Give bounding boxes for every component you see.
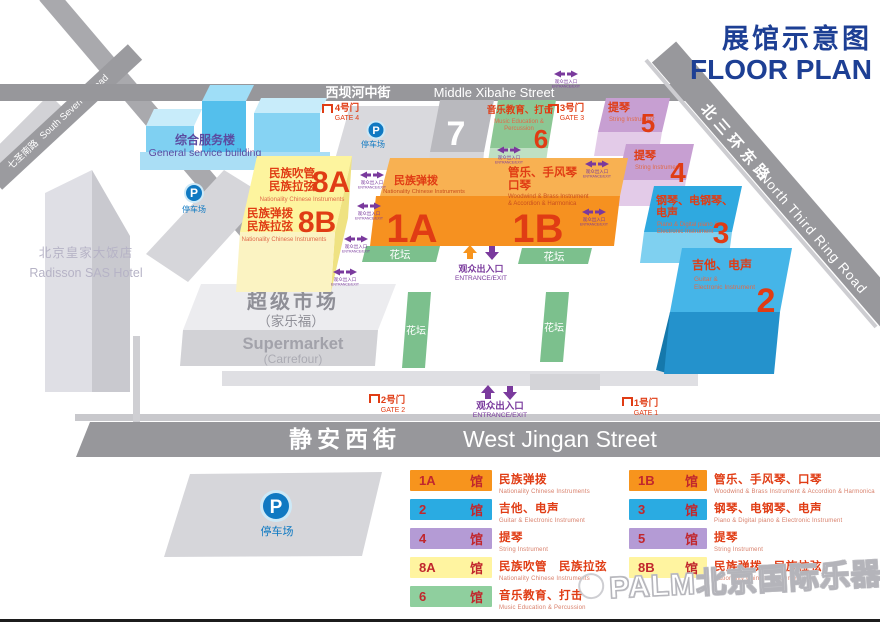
road-jingan: 静安西街 West Jingan Street	[75, 414, 880, 457]
entrance-en: ENTRANCE/EXIT	[583, 175, 612, 179]
hall-8a-number: 8A	[312, 166, 350, 199]
legend-desc-zh: 吉他、电声	[499, 500, 585, 516]
parking-label: 停车场	[182, 204, 206, 214]
venue-walkway	[222, 371, 698, 386]
legend-num: 3	[638, 502, 645, 517]
entrance-zh: 观众出入口	[458, 263, 503, 274]
entrance-exit-marker: 观众出入口 ENTRANCE/EXIT	[552, 71, 581, 89]
gate-4: 4号门 GATE 4	[323, 102, 359, 122]
gate-icon	[323, 105, 332, 113]
supermarket-zh: 超级市场	[246, 289, 339, 313]
hall-3-label-en1: Piano & Digital piano &	[657, 222, 718, 228]
legend-num: 1B	[638, 473, 655, 488]
hall-8b-label-en: Nationality Chinese Instruments	[242, 237, 327, 243]
hall-2: 吉他、电声 Guitar & Electronic Instrument 2	[656, 248, 792, 374]
legend-desc-en: Nationality Chinese Instruments	[714, 576, 822, 582]
flower-bed-label: 花坛	[406, 324, 426, 337]
supermarket-en-sub: (Carrefour)	[264, 352, 323, 366]
parking-lot-south: P 停车场	[164, 472, 382, 557]
legend-box-8b: 8B馆	[629, 557, 707, 578]
service-block3-top	[254, 98, 327, 113]
entrance-en: ENTRANCE/EXIT	[495, 161, 524, 165]
venue-side-path	[133, 336, 140, 422]
hall-4-label-zh: 提琴	[634, 148, 656, 162]
service-block2-top	[202, 85, 254, 101]
hall-2-label-en1: Guitar &	[694, 276, 719, 283]
legend-row-2: 2馆 吉他、电声Guitar & Electronic Instrument	[410, 499, 585, 524]
legend-desc-en: Music Education & Percussion	[499, 605, 586, 611]
floor-plan-page: 七圣南路South Seven st Road 西坝河中街 Middle Xib…	[0, 0, 880, 622]
entrance-central: 观众出入口 ENTRANCE/EXIT	[455, 245, 507, 282]
entrance-south: 观众出入口 ENTRANCE/EXIT	[473, 385, 527, 419]
hall-6-label-en2: Percussion	[504, 126, 534, 132]
entrance-en: ENTRANCE/EXIT	[580, 223, 609, 227]
down-arrow-icon	[485, 246, 499, 260]
gate-2-en: GATE 2	[381, 407, 405, 414]
gate-3-en: GATE 3	[560, 115, 584, 122]
hotel-name-zh: 北京皇家大饭店	[39, 245, 134, 260]
legend-desc-zh: 提琴	[714, 529, 763, 545]
supermarket-en: Supermarket	[243, 335, 344, 353]
hall-1b-label-en1: Woodwind & Brass Instrument	[508, 194, 589, 200]
legend-row-1a: 1A馆 民族弹拨Nationality Chinese Instruments	[410, 470, 590, 495]
entrance-en: ENTRANCE/EXIT	[455, 275, 507, 282]
entrance-en: ENTRANCE/EXIT	[342, 250, 371, 254]
legend-desc-zh: 钢琴、电钢琴、电声	[714, 500, 842, 516]
hall-2-number: 2	[757, 282, 776, 320]
legend-suffix: 馆	[685, 558, 698, 577]
legend-suffix: 馆	[470, 529, 483, 548]
hall-2-label-zh: 吉他、电声	[692, 257, 752, 272]
gate-4-zh: 4号门	[335, 102, 359, 114]
legend-desc-en: Nationality Chinese Instruments	[499, 576, 607, 582]
supermarket-zh-sub: （家乐福）	[257, 313, 325, 329]
page-title: 展馆示意图 FLOOR PLAN	[690, 23, 872, 85]
road-xibahe-en: Middle Xibahe Street	[434, 85, 555, 100]
hall-1a-label-en: Nationality Chinese Instruments	[383, 189, 465, 195]
legend-desc-en: Piano & Digital piano & Electronic Instr…	[714, 518, 842, 524]
hotel-building: 北京皇家大饭店 Radisson SAS Hotel	[29, 170, 142, 392]
hotel-name-en: Radisson SAS Hotel	[29, 266, 142, 280]
hall-1b-label-zh1: 管乐、手风琴	[508, 165, 577, 179]
legend-num: 2	[419, 502, 426, 517]
hall-3-label-zh1: 钢琴、电钢琴、	[656, 193, 733, 207]
title-zh: 展馆示意图	[722, 23, 872, 54]
hall-5-number: 5	[641, 108, 655, 138]
hall-7: 7	[429, 100, 494, 164]
entrance-en: ENTRANCE/EXIT	[358, 186, 387, 190]
legend-suffix: 馆	[685, 471, 698, 490]
walkway-step	[530, 374, 600, 390]
legend-row-1b: 1B馆 管乐、手风琴、口琴Woodwind & Brass Instrument…	[629, 470, 875, 495]
legend-box-5: 5馆	[629, 528, 707, 549]
road-xibahe-zh: 西坝河中街	[325, 85, 390, 100]
entrance-exit-marker: 观众出入口 ENTRANCE/EXIT	[358, 172, 387, 190]
legend-row-3: 3馆 钢琴、电钢琴、电声Piano & Digital piano & Elec…	[629, 499, 842, 524]
hall-8a-label-en: Nationality Chinese Instruments	[260, 197, 345, 203]
road-jingan-zh: 静安西街	[289, 426, 401, 452]
legend-desc-zh: 管乐、手风琴、口琴	[714, 471, 875, 487]
hall-6-number: 6	[534, 124, 548, 154]
legend-box-2: 2馆	[410, 499, 492, 520]
legend-suffix: 馆	[685, 529, 698, 548]
title-en: FLOOR PLAN	[690, 54, 872, 85]
hall-5-label-zh: 提琴	[608, 100, 630, 114]
supermarket-building: 超级市场 （家乐福） Supermarket (Carrefour)	[180, 284, 396, 366]
parking-symbol: P	[270, 497, 283, 518]
gate-2-zh: 2号门	[381, 394, 405, 406]
legend-desc-zh: 民族吹管 民族拉弦	[499, 558, 607, 574]
entrance-zh: 观众出入口	[475, 400, 524, 412]
down-arrow-icon	[503, 386, 517, 400]
hall-8b-label-zh2: 民族拉弦	[247, 219, 293, 233]
legend-suffix: 馆	[470, 500, 483, 519]
legend-num: 6	[419, 589, 426, 604]
legend-box-3: 3馆	[629, 499, 707, 520]
legend-row-8a: 8A馆 民族吹管 民族拉弦Nationality Chinese Instrum…	[410, 557, 607, 582]
gate-icon	[623, 398, 632, 406]
legend-box-4: 4馆	[410, 528, 492, 549]
entrance-en: ENTRANCE/EXIT	[331, 283, 360, 287]
road-jingan-en: West Jingan Street	[463, 426, 658, 452]
legend-suffix: 馆	[470, 471, 483, 490]
legend-row-6: 6馆 音乐教育、打击Music Education & Percussion	[410, 586, 586, 611]
hotel-face-right	[92, 170, 130, 392]
hall-8a-label-zh2: 民族拉弦	[269, 179, 315, 193]
legend-desc-en: String Instrument	[714, 547, 763, 553]
hall-8b-number: 8B	[298, 206, 336, 239]
hall-8b-label-zh1: 民族弹拨	[247, 206, 293, 220]
hotel-face-left	[45, 170, 92, 392]
gate-1-zh: 1号门	[634, 397, 658, 409]
legend-row-4: 4馆 提琴String Instrument	[410, 528, 548, 553]
gate-3: 3号门 GATE 3	[549, 102, 584, 122]
legend-row-5: 5馆 提琴String Instrument	[629, 528, 763, 553]
hall-4-number: 4	[670, 157, 686, 188]
legend-desc-zh: 音乐教育、打击	[499, 587, 586, 603]
legend-num: 8A	[419, 560, 436, 575]
legend-desc-en: Nationality Chinese Instruments	[499, 489, 590, 495]
hall-3-label-zh2: 电声	[656, 205, 678, 219]
legend-box-8a: 8A馆	[410, 557, 492, 578]
hall-1a-number: 1A	[386, 207, 437, 251]
hall-3-number: 3	[713, 217, 730, 250]
service-name-en: General service building	[149, 147, 262, 159]
legend-box-1a: 1A馆	[410, 470, 492, 491]
hall-7-number: 7	[447, 115, 466, 153]
legend-desc-zh: 民族弹拨 民族拉弦	[714, 558, 822, 574]
legend-box-6: 6馆	[410, 586, 492, 607]
legend-num: 8B	[638, 560, 655, 575]
hall-1b-number: 1B	[512, 207, 563, 251]
hall-1b-label-zh2: 口琴	[508, 179, 531, 192]
flower-bed-label: 花坛	[544, 321, 564, 334]
flower-bed-label: 花坛	[390, 248, 411, 261]
hall-2-front	[664, 312, 780, 374]
service-name-zh: 综合服务楼	[175, 132, 235, 147]
up-arrow-icon	[463, 245, 477, 259]
road-xibahe: 西坝河中街 Middle Xibahe Street	[0, 84, 692, 101]
legend-num: 4	[419, 531, 426, 546]
parking-label: 停车场	[361, 139, 385, 149]
legend-desc-zh: 提琴	[499, 529, 548, 545]
hall-8a-label-zh1: 民族吹管	[269, 166, 315, 180]
service-block3-front	[254, 113, 320, 152]
legend-suffix: 馆	[470, 587, 483, 606]
legend-row-8b: 8B馆 民族弹拨 民族拉弦Nationality Chinese Instrum…	[629, 557, 822, 582]
gate-3-zh: 3号门	[560, 102, 584, 114]
legend-suffix: 馆	[685, 500, 698, 519]
entrance-en: ENTRANCE/EXIT	[473, 412, 527, 419]
legend-box-1b: 1B馆	[629, 470, 707, 491]
legend-num: 5	[638, 531, 645, 546]
gate-4-en: GATE 4	[335, 115, 359, 122]
hall-3-label-en2: Electronic Instrument	[657, 229, 714, 235]
entrance-en: ENTRANCE/EXIT	[355, 217, 384, 221]
parking-symbol: P	[190, 186, 198, 200]
hall-1a-label-zh: 民族弹拨	[394, 173, 439, 187]
entrance-exit-marker: 观众出入口 ENTRANCE/EXIT	[342, 236, 371, 254]
legend-suffix: 馆	[470, 558, 483, 577]
legend-desc-en: Guitar & Electronic Instrument	[499, 518, 585, 524]
legend-desc-zh: 民族弹拨	[499, 471, 590, 487]
legend-num: 1A	[419, 473, 436, 488]
up-arrow-icon	[481, 385, 495, 399]
gate-1-en: GATE 1	[634, 410, 658, 417]
hall-6-label-zh: 音乐教育、打击	[487, 104, 554, 116]
flower-bed-label: 花坛	[544, 250, 565, 263]
entrance-en: ENTRANCE/EXIT	[552, 85, 581, 89]
legend-desc-en: Woodwind & Brass Instrument & Accordion …	[714, 489, 875, 495]
service-block1-top	[146, 109, 202, 126]
gate-2: 2号门 GATE 2	[370, 394, 405, 414]
hall-2-label-en2: Electronic Instrument	[694, 284, 755, 291]
hall-6: 音乐教育、打击 Music Education & Percussion 6	[487, 100, 556, 162]
parking-label: 停车场	[261, 524, 294, 538]
legend-desc-en: String Instrument	[499, 547, 548, 553]
gate-icon	[370, 395, 379, 403]
parking-symbol: P	[372, 125, 379, 137]
entrance-exit-marker: 观众出入口 ENTRANCE/EXIT	[331, 269, 360, 287]
